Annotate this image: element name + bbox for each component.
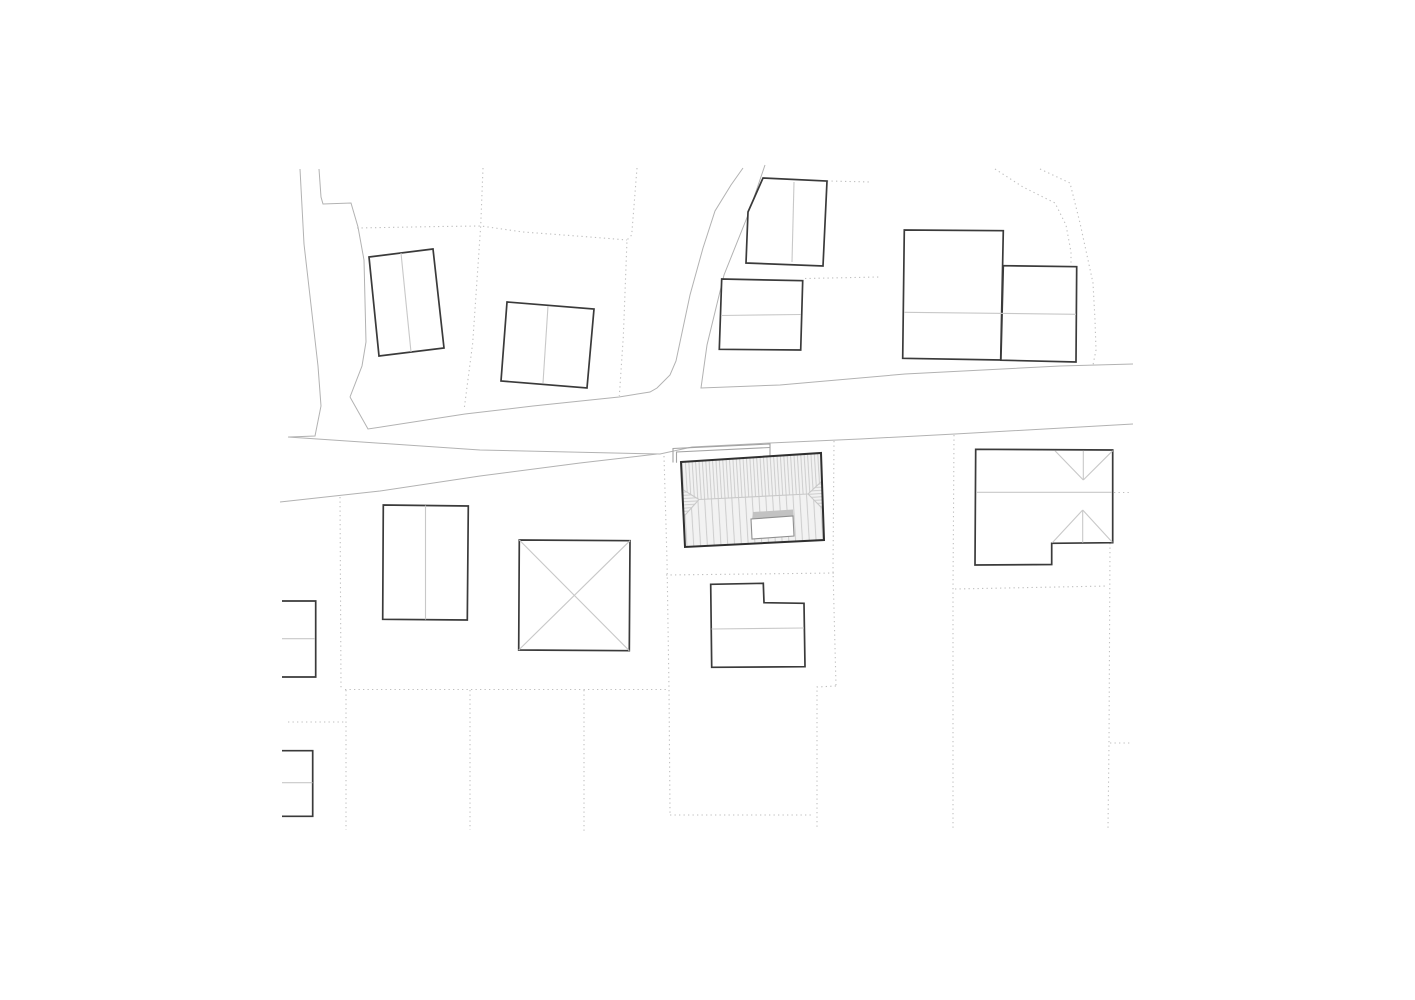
drawing-clip-group <box>280 165 1133 831</box>
building-east-hipped <box>975 449 1113 565</box>
building-center-square-x <box>519 540 630 651</box>
building-edge-west-lower <box>282 751 313 817</box>
parcel-boundary-ne-curve-1 <box>995 169 1071 263</box>
site-plan-page <box>0 0 1415 1000</box>
parcel-boundary-east-horizontal <box>955 586 1108 589</box>
parcel-boundary-east-long-vertical <box>953 435 954 830</box>
side-road-west-right-edge <box>319 169 366 397</box>
parcel-boundary-nw-vertical <box>464 168 483 408</box>
parcel-boundary-site-east <box>833 441 836 686</box>
building-north-rect <box>719 279 802 350</box>
parcel-boundary-nw-horizontal <box>357 226 627 240</box>
site-plan-drawing <box>0 0 1415 1000</box>
building-north-pentagon-footprint <box>746 178 827 266</box>
side-road-west-left-edge <box>289 169 321 437</box>
building-east-hipped-footprint <box>975 449 1113 565</box>
parcel-boundary-far-east-vertical <box>1108 543 1110 828</box>
main-road-south-verge-edge <box>280 454 657 502</box>
parcel-boundary-west-vertical-upper <box>340 497 341 688</box>
building-ne-large <box>903 230 1004 360</box>
parcel-boundary-site-east-jog <box>817 686 836 827</box>
parcel-boundary-stub-north-rect <box>805 277 879 279</box>
project-building-layer <box>681 453 824 547</box>
building-north-pentagon <box>746 178 827 266</box>
building-ne-large-footprint <box>903 230 1004 360</box>
parcel-boundary-north-vertical <box>619 168 637 396</box>
building-edge-west-upper <box>282 601 316 677</box>
parcel-boundary-site-south <box>666 573 836 575</box>
building-south-lshape-footprint <box>711 583 805 667</box>
building-nw-ridge-1 <box>369 249 444 356</box>
building-edge-west-lower-footprint <box>282 751 313 817</box>
project-building-hatched-skylight <box>751 516 794 539</box>
building-west-rect <box>383 505 469 620</box>
building-south-lshape <box>711 583 805 667</box>
building-nw-ridge-2 <box>501 302 594 388</box>
parcel-boundary-site-west <box>664 456 670 814</box>
parcel-boundary-stub-gable-house <box>827 181 872 182</box>
project-building-hatched <box>681 453 824 547</box>
